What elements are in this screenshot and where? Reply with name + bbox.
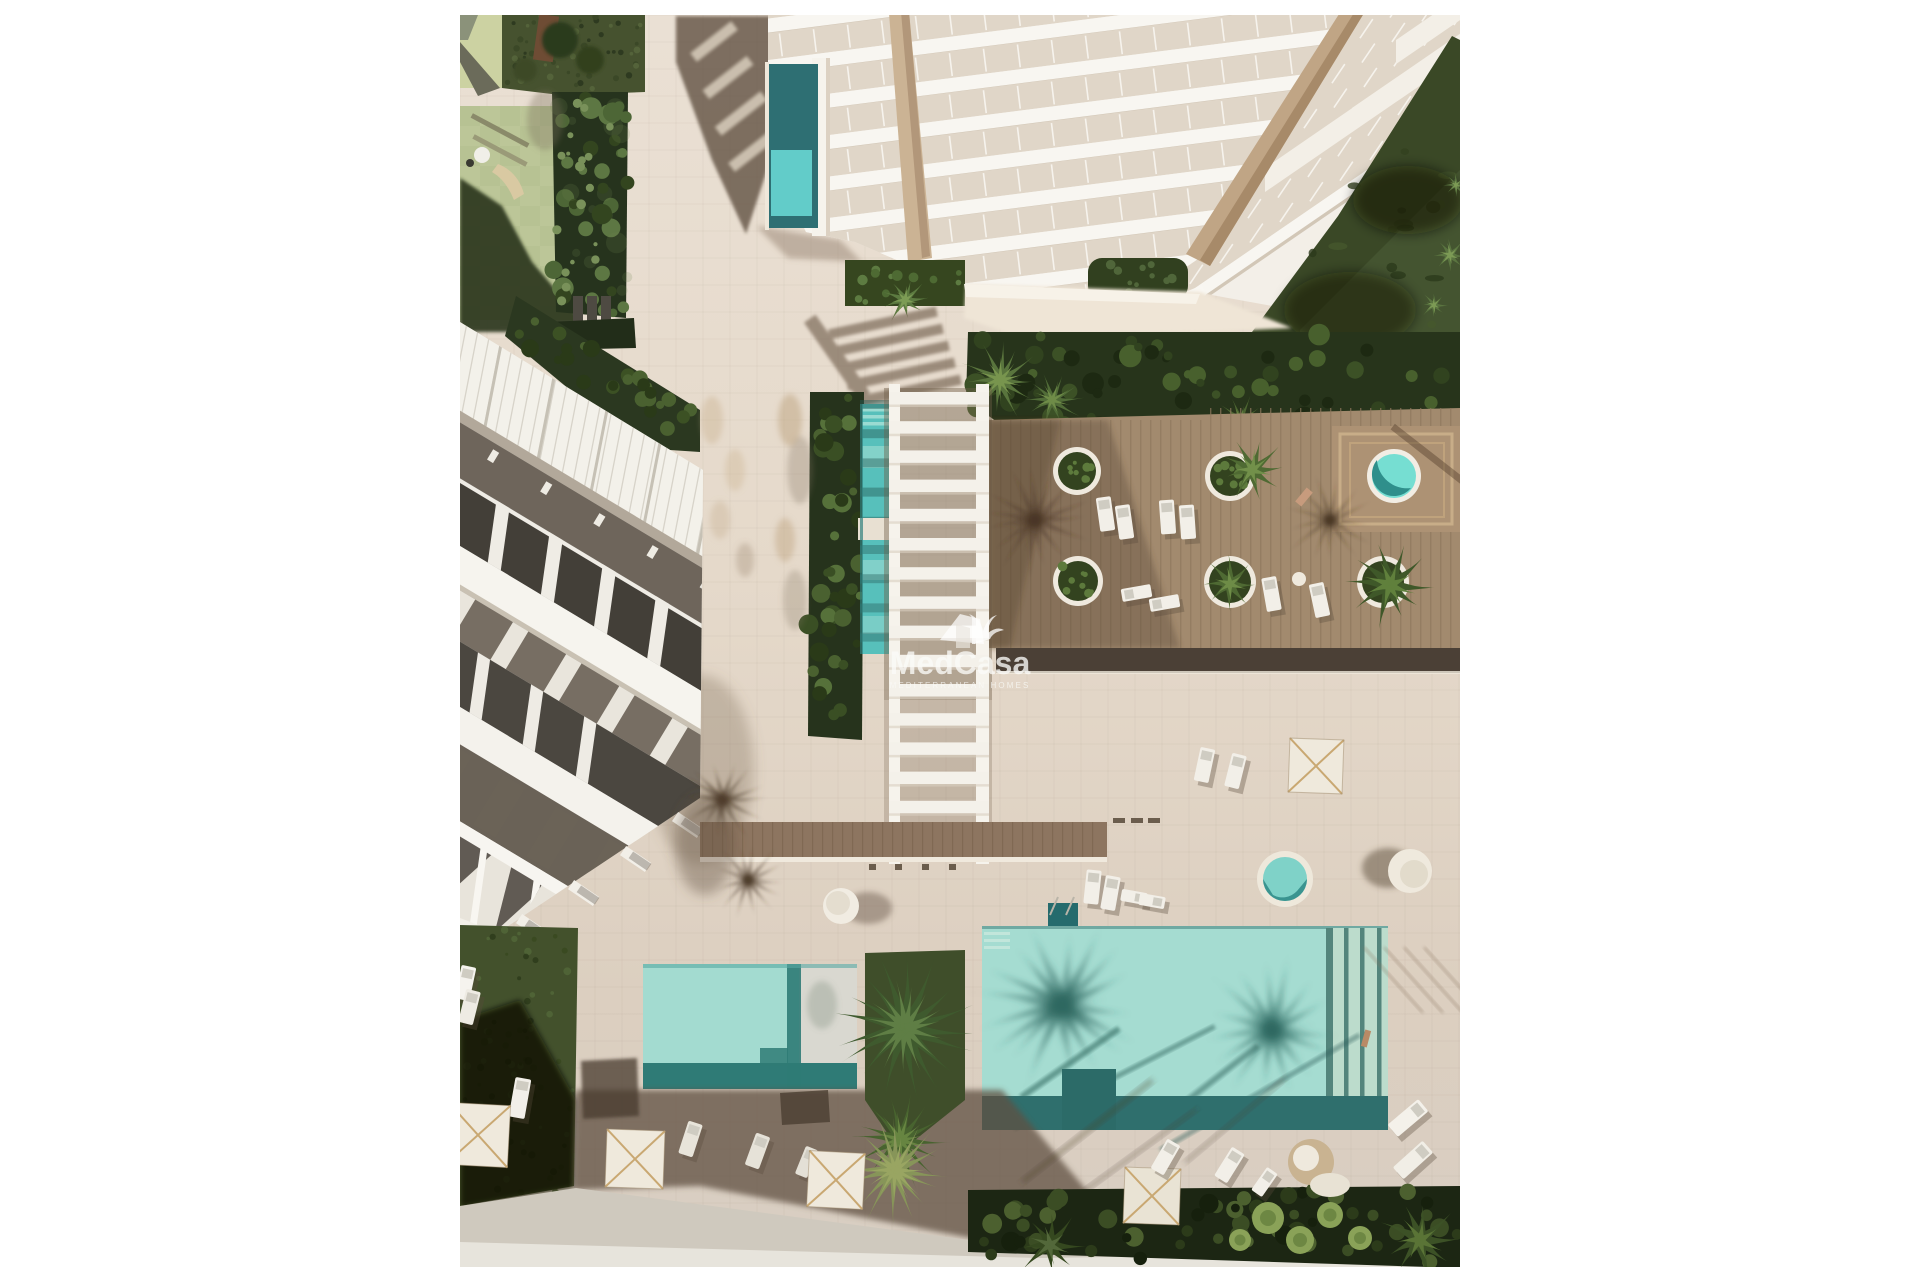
svg-text:MedCasa: MedCasa bbox=[890, 645, 1031, 681]
svg-text:MEDITERRANEAN HOMES: MEDITERRANEAN HOMES bbox=[890, 681, 1031, 690]
